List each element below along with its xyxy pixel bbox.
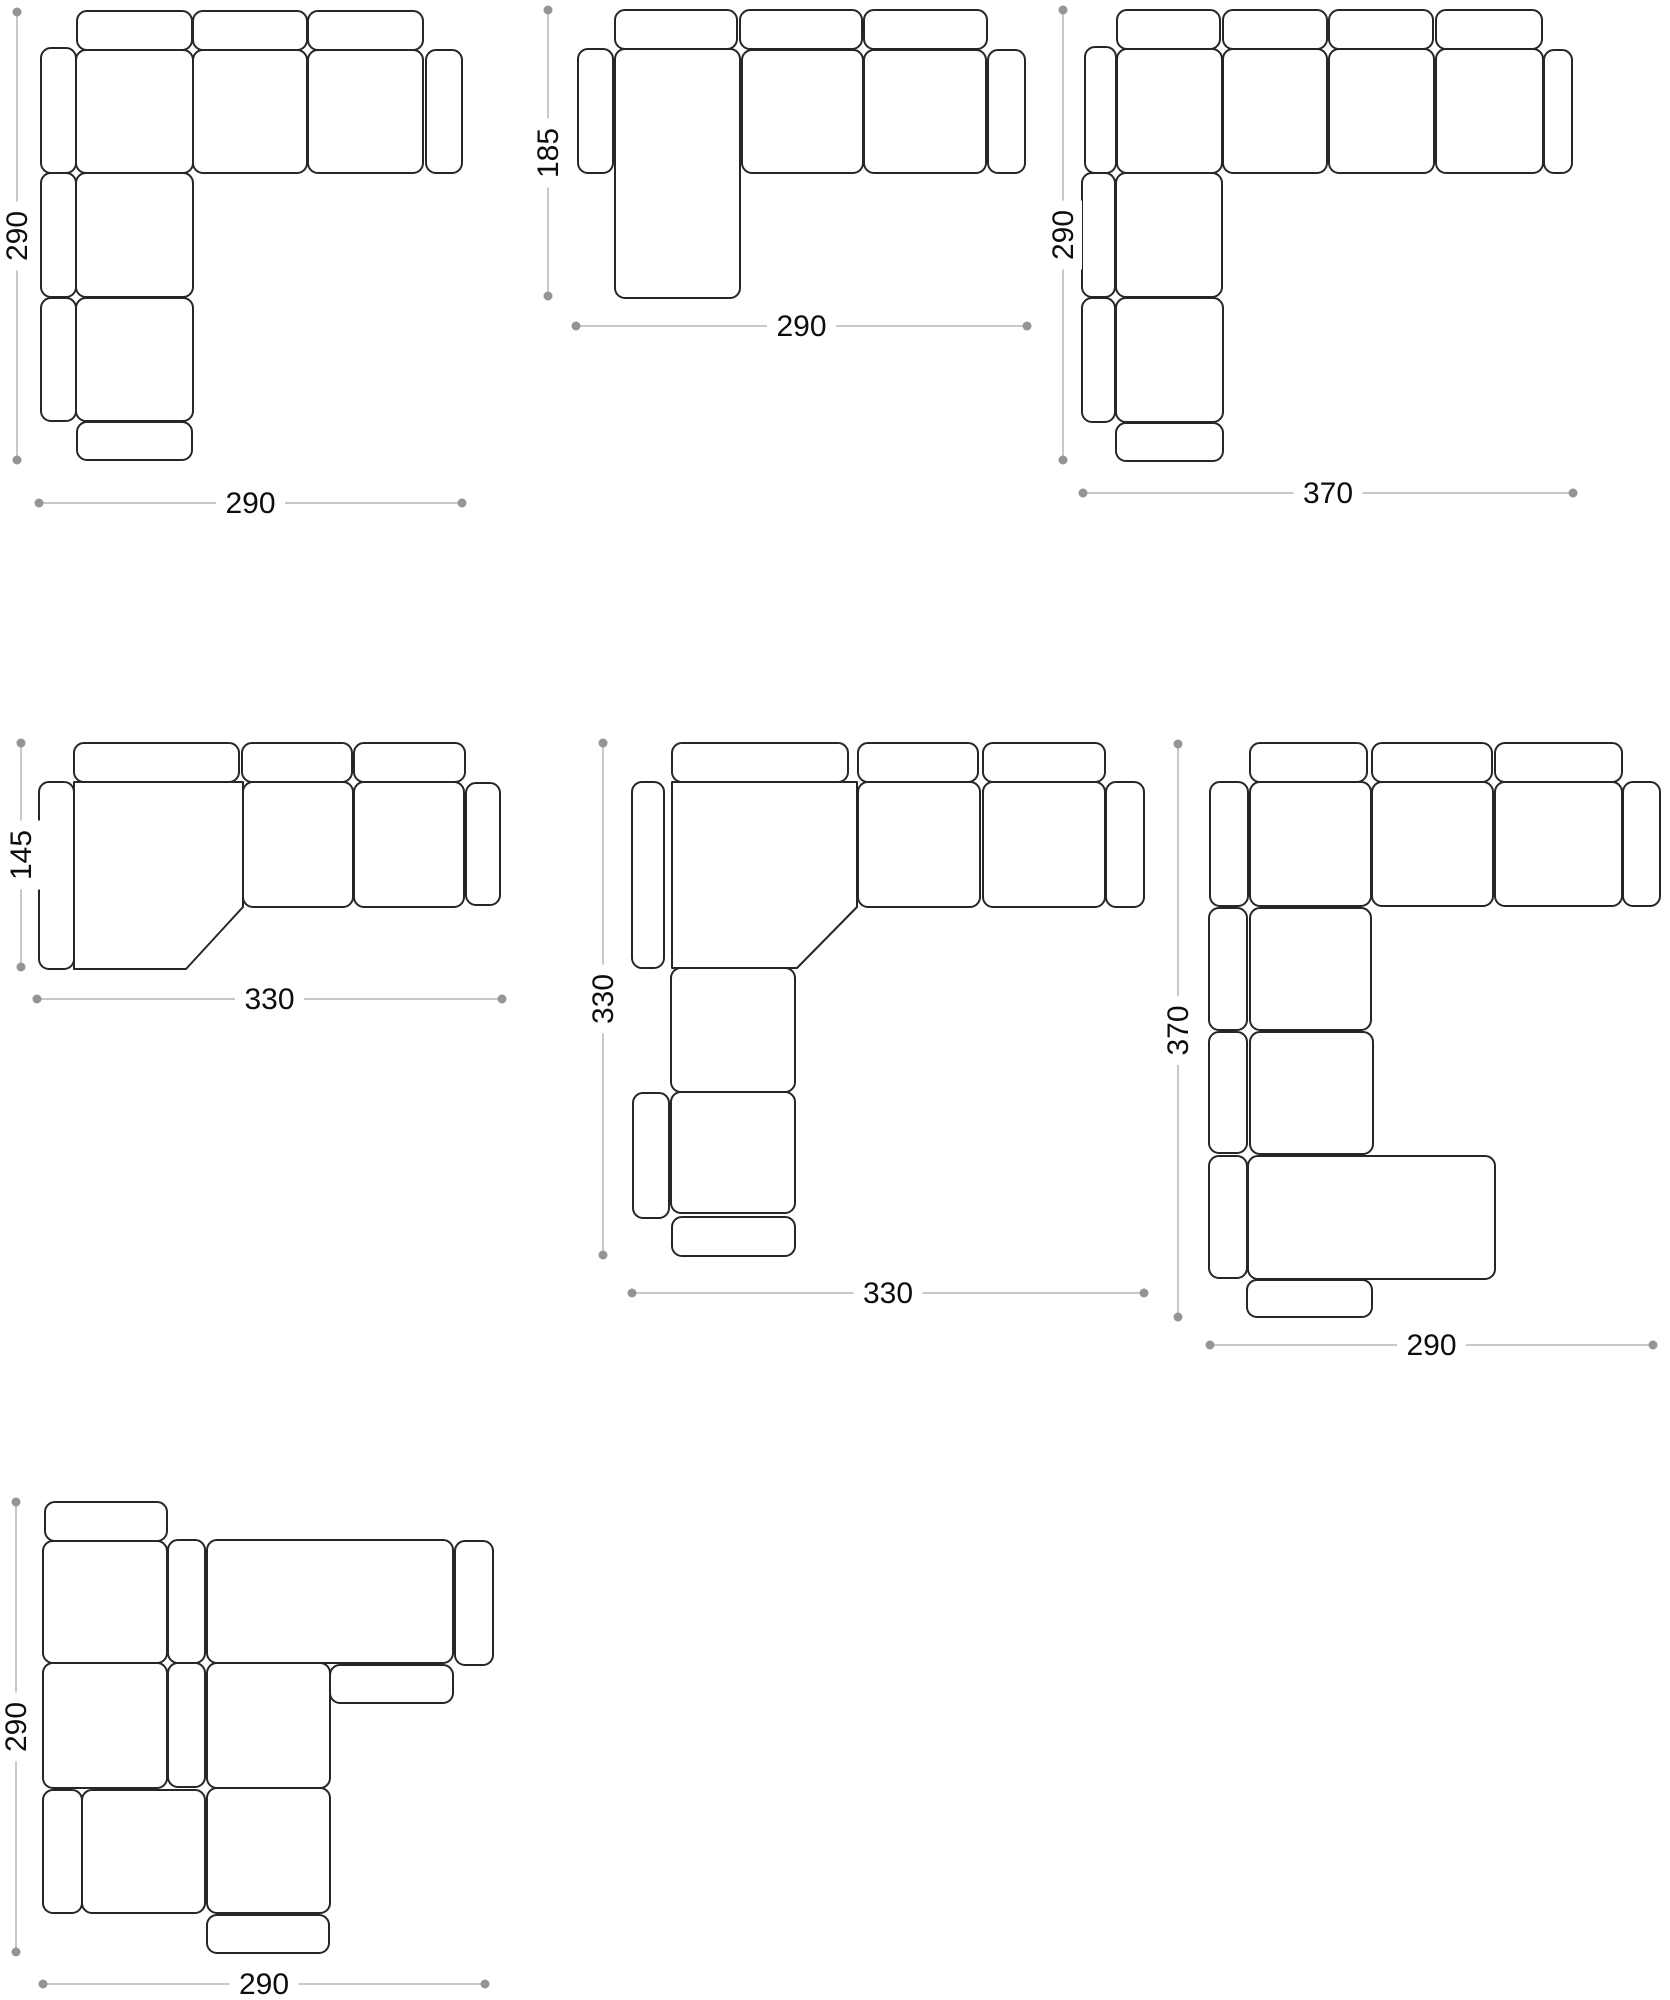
dimension-endpoint-dot bbox=[1206, 1341, 1215, 1350]
floorplan-svg: 2902901852902903701453303303303702902902… bbox=[0, 0, 1670, 2000]
sofa-configuration-c7: 290290 bbox=[0, 1498, 493, 2000]
sofa-piece-seat bbox=[671, 1092, 795, 1213]
sofa-piece-back-cushion bbox=[330, 1665, 453, 1703]
sofa-piece-seat bbox=[354, 782, 464, 907]
dimension-endpoint-dot bbox=[1569, 489, 1578, 498]
sofa-piece-armrest bbox=[1082, 298, 1115, 422]
dimension-label: 290 bbox=[1, 211, 34, 261]
dimension-endpoint-dot bbox=[599, 739, 608, 748]
sofa-piece-back-cushion bbox=[1250, 743, 1367, 782]
dimension-endpoint-dot bbox=[35, 499, 44, 508]
sofa-piece-armrest bbox=[168, 1540, 205, 1663]
dimension-endpoint-dot bbox=[12, 1498, 21, 1507]
dimension-endpoint-dot bbox=[1059, 6, 1068, 15]
dimension-endpoint-dot bbox=[544, 292, 553, 301]
sofa-piece-ottoman bbox=[1248, 1156, 1495, 1279]
sofa-piece-seat bbox=[742, 50, 863, 173]
sofa-piece-back-cushion bbox=[740, 10, 862, 49]
dimension-endpoint-dot bbox=[1174, 1313, 1183, 1322]
dimension-label: 290 bbox=[776, 310, 826, 343]
sofa-piece-armrest bbox=[41, 173, 76, 297]
dimension-endpoint-dot bbox=[481, 1980, 490, 1989]
sofa-piece-armrest bbox=[1085, 47, 1116, 173]
sofa-piece-armrest bbox=[1082, 173, 1115, 297]
sofa-piece-armrest bbox=[466, 783, 500, 905]
sofa-piece-seat bbox=[76, 298, 193, 421]
dimension-vertical: 290 bbox=[1044, 6, 1082, 465]
sofa-piece-back-cushion bbox=[1372, 743, 1492, 782]
sofa-piece-armrest bbox=[988, 50, 1025, 173]
dimension-horizontal: 370 bbox=[1079, 474, 1578, 512]
sofa-piece-back-cushion bbox=[242, 743, 352, 782]
dimension-vertical: 290 bbox=[0, 8, 36, 465]
dimension-label: 290 bbox=[0, 1702, 33, 1752]
sofa-piece-back-cushion bbox=[1247, 1280, 1372, 1317]
sofa-piece-seat bbox=[1250, 1032, 1373, 1154]
dimension-label: 290 bbox=[1047, 210, 1080, 260]
dimension-endpoint-dot bbox=[33, 995, 42, 1004]
dimension-endpoint-dot bbox=[39, 1980, 48, 1989]
dimension-vertical: 290 bbox=[0, 1498, 35, 1957]
dimension-endpoint-dot bbox=[1140, 1289, 1149, 1298]
dimension-vertical: 370 bbox=[1159, 740, 1197, 1322]
dimension-endpoint-dot bbox=[13, 456, 22, 465]
dimension-endpoint-dot bbox=[17, 739, 26, 748]
sofa-piece-back-cushion bbox=[864, 10, 987, 49]
sofa-piece-back-cushion bbox=[308, 11, 423, 50]
sofa-piece-seat bbox=[1117, 49, 1222, 173]
sofa-piece-back-cushion bbox=[207, 1915, 329, 1953]
sofa-piece-seat bbox=[193, 50, 307, 173]
sofa-piece-armrest bbox=[1209, 1156, 1247, 1278]
dimension-endpoint-dot bbox=[1649, 1341, 1658, 1350]
sofa-piece-seat bbox=[983, 782, 1105, 907]
dimension-horizontal: 290 bbox=[1206, 1326, 1658, 1364]
sofa-piece-back-cushion bbox=[354, 743, 465, 782]
sofa-piece-seat bbox=[864, 50, 986, 173]
dimension-label: 290 bbox=[1406, 1329, 1456, 1362]
sofa-piece-armrest bbox=[41, 48, 76, 173]
sofa-piece-seat bbox=[1116, 298, 1223, 422]
dimension-endpoint-dot bbox=[498, 995, 507, 1004]
sofa-piece-back-cushion bbox=[74, 743, 239, 782]
sofa-piece-seat bbox=[43, 1541, 167, 1663]
sofa-piece-armrest bbox=[632, 782, 664, 968]
dimension-horizontal: 290 bbox=[39, 1965, 490, 2000]
dimension-horizontal: 290 bbox=[572, 307, 1032, 345]
dimension-vertical: 145 bbox=[2, 739, 40, 972]
sofa-piece-back-cushion bbox=[672, 743, 848, 782]
sofa-piece-seat bbox=[207, 1663, 330, 1788]
dimension-endpoint-dot bbox=[1059, 456, 1068, 465]
sofa-piece-seat bbox=[43, 1663, 167, 1788]
sofa-piece-back-cushion bbox=[193, 11, 307, 50]
sofa-piece-seat bbox=[1372, 782, 1493, 906]
sofa-piece-armrest bbox=[1544, 50, 1572, 173]
dimension-endpoint-dot bbox=[1079, 489, 1088, 498]
dimension-endpoint-dot bbox=[1023, 322, 1032, 331]
dimension-horizontal: 330 bbox=[628, 1274, 1149, 1312]
sofa-piece-corner-seat bbox=[74, 782, 243, 969]
sofa-piece-back-cushion bbox=[77, 422, 192, 460]
dimension-endpoint-dot bbox=[572, 322, 581, 331]
sofa-configuration-c2: 185290 bbox=[529, 6, 1032, 346]
dimension-label: 330 bbox=[244, 983, 294, 1016]
dimension-label: 370 bbox=[1303, 477, 1353, 510]
sofa-configuration-c3: 290370 bbox=[1044, 6, 1578, 513]
sofa-piece-seat bbox=[207, 1540, 453, 1663]
dimension-endpoint-dot bbox=[12, 1948, 21, 1957]
dimension-endpoint-dot bbox=[13, 8, 22, 17]
sofa-piece-back-cushion bbox=[1329, 10, 1433, 49]
sofa-piece-armrest bbox=[426, 50, 462, 173]
sofa-piece-armrest bbox=[1209, 1032, 1247, 1153]
sofa-piece-armrest bbox=[1209, 908, 1247, 1030]
dimension-label: 290 bbox=[225, 487, 275, 520]
sofa-piece-seat bbox=[1329, 49, 1434, 173]
sofa-piece-seat bbox=[1495, 782, 1622, 906]
sofa-piece-back-cushion bbox=[1223, 10, 1327, 49]
dimension-endpoint-dot bbox=[599, 1251, 608, 1260]
sofa-piece-armrest bbox=[43, 1790, 82, 1913]
dimension-endpoint-dot bbox=[628, 1289, 637, 1298]
sofa-piece-seat bbox=[207, 1788, 330, 1913]
sofa-configuration-c4: 145330 bbox=[2, 739, 507, 1019]
sofa-piece-seat bbox=[1116, 173, 1222, 297]
sofa-piece-seat bbox=[82, 1790, 205, 1913]
sofa-piece-back-cushion bbox=[858, 743, 978, 782]
sofa-piece-back-cushion bbox=[672, 1217, 795, 1256]
dimension-endpoint-dot bbox=[544, 6, 553, 15]
sofa-piece-seat bbox=[1436, 49, 1543, 173]
sofa-piece-seat bbox=[858, 782, 980, 907]
dimension-endpoint-dot bbox=[1174, 740, 1183, 749]
dimension-horizontal: 290 bbox=[35, 484, 467, 522]
sofa-piece-armrest bbox=[1623, 782, 1660, 906]
dimension-label: 145 bbox=[5, 830, 38, 880]
sofa-piece-seat bbox=[1250, 782, 1371, 906]
sofa-piece-seat bbox=[1250, 908, 1371, 1030]
sofa-piece-back-cushion bbox=[1117, 10, 1220, 49]
sofa-piece-back-cushion bbox=[615, 10, 737, 49]
sofa-configuration-c5: 330330 bbox=[584, 739, 1149, 1313]
dimension-label: 330 bbox=[587, 974, 620, 1024]
sofa-piece-corner-seat bbox=[672, 782, 857, 968]
sofa-piece-seat bbox=[671, 968, 795, 1092]
sofa-piece-seat bbox=[76, 50, 193, 173]
sofa-piece-armrest bbox=[41, 298, 76, 421]
sofa-piece-armrest bbox=[39, 782, 74, 969]
sofa-piece-seat bbox=[76, 173, 193, 297]
dimension-label: 370 bbox=[1162, 1005, 1195, 1055]
dimension-vertical: 330 bbox=[584, 739, 622, 1260]
sofa-piece-seat bbox=[1223, 49, 1327, 173]
sofa-piece-back-cushion bbox=[1116, 423, 1223, 461]
sofa-piece-armrest bbox=[455, 1541, 493, 1665]
sofa-piece-seat bbox=[308, 50, 423, 173]
sofa-piece-armrest bbox=[633, 1093, 669, 1218]
dimension-endpoint-dot bbox=[458, 499, 467, 508]
sofa-piece-chaise bbox=[615, 49, 740, 298]
floorplan-canvas: 2902901852902903701453303303303702902902… bbox=[0, 0, 1670, 2000]
sofa-piece-seat bbox=[243, 782, 353, 907]
dimension-horizontal: 330 bbox=[33, 980, 507, 1018]
sofa-piece-back-cushion bbox=[1495, 743, 1622, 782]
dimension-vertical: 185 bbox=[529, 6, 567, 301]
sofa-configuration-c6: 370290 bbox=[1159, 740, 1660, 1365]
sofa-piece-back-cushion bbox=[77, 11, 192, 50]
sofa-piece-armrest bbox=[168, 1663, 205, 1787]
sofa-piece-armrest bbox=[1210, 782, 1248, 906]
dimension-endpoint-dot bbox=[17, 963, 26, 972]
sofa-piece-back-cushion bbox=[983, 743, 1105, 782]
sofa-configuration-c1: 290290 bbox=[0, 8, 467, 523]
sofa-piece-back-cushion bbox=[1436, 10, 1542, 49]
sofa-piece-armrest bbox=[578, 49, 613, 173]
sofa-piece-back-cushion bbox=[45, 1502, 167, 1541]
sofa-piece-armrest bbox=[1106, 782, 1144, 907]
dimension-label: 330 bbox=[863, 1277, 913, 1310]
dimension-label: 185 bbox=[532, 128, 565, 178]
dimension-label: 290 bbox=[239, 1968, 289, 2000]
